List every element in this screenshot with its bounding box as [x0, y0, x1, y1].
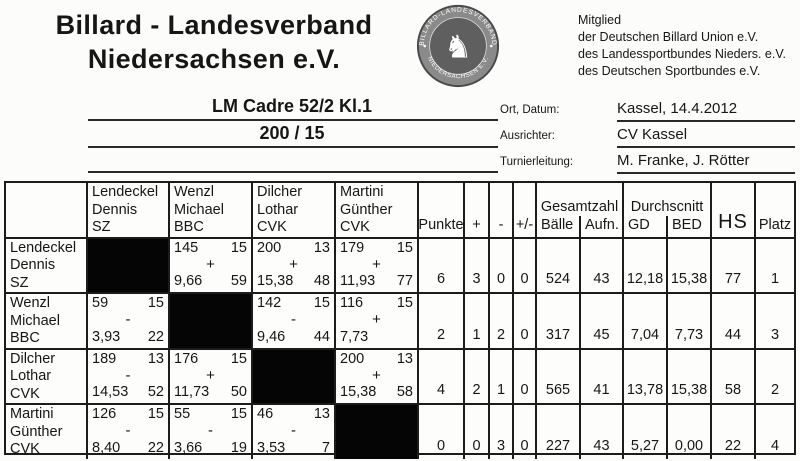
match-average: 7,73 [340, 329, 368, 345]
stat-plusminus: 0 [512, 294, 535, 348]
stat-baelle: 227 [535, 405, 579, 459]
match-sign: - [257, 311, 330, 328]
stat-bed: 15,38 [666, 239, 710, 293]
stat-baelle: 317 [535, 294, 579, 348]
match-cell: 5915 - 3,9322 [86, 294, 168, 348]
stat-plus: 0 [463, 405, 488, 459]
opponent-header-lendeckel: Lendeckel Dennis SZ [86, 183, 168, 237]
match-highrun: 7 [322, 440, 330, 456]
opponent-first-name: Lothar [257, 202, 332, 220]
header-aufn: Aufn. [579, 216, 622, 237]
stat-hs: 58 [710, 350, 754, 404]
organization-title-line1: Billard - Landesverband [28, 8, 400, 42]
stat-baelle: 565 [535, 350, 579, 404]
table-row-dilcher: Dilcher Lothar CVK 18913 - 14,5352 17615… [6, 348, 794, 404]
header-hs: HS [710, 183, 754, 237]
match-cell: 14515 + 9,6659 [168, 239, 251, 293]
match-sign: + [340, 367, 413, 384]
match-innings: 15 [148, 295, 164, 311]
match-innings: 15 [397, 295, 413, 311]
opponent-last-name: Martini [340, 184, 415, 202]
match-innings: 15 [314, 295, 330, 311]
match-cell: 18913 - 14,5352 [86, 350, 168, 404]
meta-ausrichter: Ausrichter: CV Kassel [500, 126, 796, 150]
match-innings: 15 [397, 240, 413, 256]
match-sign: - [92, 311, 164, 328]
opponent-last-name: Dilcher [257, 184, 332, 202]
match-innings: 13 [314, 406, 330, 422]
match-sign: - [174, 422, 247, 439]
stat-punkte: 6 [417, 239, 463, 293]
association-seal-logo: BILLARD-LANDESVERBAND NIEDERSACHSEN E.V.… [414, 2, 502, 90]
stat-gd: 13,78 [622, 350, 666, 404]
stat-aufn: 41 [579, 350, 622, 404]
match-average: 15,38 [257, 273, 293, 289]
player-cell: Lendeckel Dennis SZ [6, 239, 86, 293]
player-last-name: Lendeckel [10, 240, 84, 258]
stat-minus: 1 [488, 350, 512, 404]
header-durchschnitt: Durchscnitt [624, 199, 710, 216]
match-cell: 4613 - 3,537 [251, 405, 334, 459]
opponent-first-name: Günther [340, 202, 415, 220]
match-score: 59 [92, 295, 108, 311]
stat-minus: 2 [488, 294, 512, 348]
stat-aufn: 43 [579, 239, 622, 293]
stat-plusminus: 0 [512, 350, 535, 404]
match-sign: - [92, 422, 164, 439]
match-highrun: 22 [148, 329, 164, 345]
player-club: CVK [10, 386, 84, 404]
stat-hs: 22 [710, 405, 754, 459]
match-score: 142 [257, 295, 281, 311]
meta-label: Ort, Datum: [500, 104, 559, 116]
player-last-name: Martini [10, 406, 84, 424]
header-punkte: Punkte [417, 183, 463, 237]
opponent-last-name: Wenzl [174, 184, 249, 202]
match-highrun: 58 [397, 384, 413, 400]
stat-punkte: 2 [417, 294, 463, 348]
match-sign: + [340, 256, 413, 273]
match-average: 14,53 [92, 384, 128, 400]
event-title: LM Cadre 52/2 Kl.1 [85, 96, 499, 117]
header-plusminus: +/- [512, 183, 535, 237]
meta-label: Turnierleitung: [500, 156, 573, 168]
self-match-cell [168, 294, 251, 348]
match-highrun: 48 [314, 273, 330, 289]
match-cell: 17615 + 11,7350 [168, 350, 251, 404]
player-first-name: Günther [10, 424, 84, 442]
meta-label: Ausrichter: [500, 130, 555, 142]
match-score: 46 [257, 406, 273, 422]
match-sign: + [340, 311, 413, 328]
stat-baelle: 524 [535, 239, 579, 293]
player-cell: Martini Günther CVK [6, 405, 86, 459]
player-last-name: Wenzl [10, 295, 84, 313]
membership-line: des Landessportbundes Nieders. e.V. [578, 46, 786, 63]
match-score: 179 [340, 240, 364, 256]
stat-punkte: 0 [417, 405, 463, 459]
stat-punkte: 4 [417, 350, 463, 404]
opponent-club: CVK [257, 219, 332, 237]
header-baelle: Bälle [537, 216, 579, 237]
table-row-wenzl: Wenzl Michael BBC 5915 - 3,9322 14215 - … [6, 292, 794, 348]
opponent-first-name: Dennis [92, 202, 166, 220]
stat-plus: 1 [463, 294, 488, 348]
divider-line [88, 171, 498, 173]
stat-aufn: 43 [579, 405, 622, 459]
match-cell: 11615 + 7,73 [334, 294, 417, 348]
meta-value: Kassel, 14.4.2012 [617, 100, 795, 122]
match-cell: 17915 + 11,9377 [334, 239, 417, 293]
match-average: 15,38 [340, 384, 376, 400]
match-score: 189 [92, 351, 116, 367]
header-platz: Platz [754, 183, 794, 237]
meta-value: CV Kassel [617, 126, 795, 148]
membership-line: des Deutschen Sportbundes e.V. [578, 63, 786, 80]
corner-cell [6, 183, 86, 237]
match-cell: 20013 + 15,3858 [334, 350, 417, 404]
organization-title-line2: Niedersachsen e.V. [28, 42, 400, 76]
match-average: 9,66 [174, 273, 202, 289]
header-gesamtzahl: Gesamtzahl [537, 199, 622, 216]
meta-value: M. Franke, J. Rötter [617, 152, 795, 174]
table-row-lendeckel: Lendeckel Dennis SZ 14515 + 9,6659 20013… [6, 237, 794, 293]
header-durchschnitt-group: Durchscnitt GD BED [622, 183, 710, 237]
match-innings: 15 [231, 351, 247, 367]
match-average: 3,93 [92, 329, 120, 345]
divider-line [88, 119, 498, 121]
player-club: SZ [10, 275, 84, 293]
match-innings: 15 [231, 240, 247, 256]
match-innings: 15 [231, 406, 247, 422]
table-row-martini: Martini Günther CVK 12615 - 8,4022 5515 … [6, 403, 794, 459]
table-header-row: Lendeckel Dennis SZ Wenzl Michael BBC Di… [6, 183, 794, 237]
match-average: 3,53 [257, 440, 285, 456]
header-plus: + [463, 183, 488, 237]
opponent-club: CVK [340, 219, 415, 237]
match-score: 200 [340, 351, 364, 367]
player-club: BBC [10, 330, 84, 348]
stat-plusminus: 0 [512, 239, 535, 293]
stat-platz: 4 [754, 405, 794, 459]
match-score: 145 [174, 240, 198, 256]
match-average: 9,46 [257, 329, 285, 345]
stat-platz: 3 [754, 294, 794, 348]
meta-turnierleitung: Turnierleitung: M. Franke, J. Rötter [500, 152, 796, 176]
organization-title: Billard - Landesverband Niedersachsen e.… [28, 8, 400, 76]
membership-line: der Deutschen Billard Union e.V. [578, 29, 786, 46]
stat-aufn: 45 [579, 294, 622, 348]
horse-icon: ♞ [444, 30, 472, 65]
stat-bed: 15,38 [666, 350, 710, 404]
stat-bed: 7,73 [666, 294, 710, 348]
header-gd: GD [624, 216, 666, 237]
match-score: 116 [340, 295, 363, 311]
match-score: 55 [174, 406, 190, 422]
match-sign: - [92, 367, 164, 384]
scanned-result-sheet: Billard - Landesverband Niedersachsen e.… [0, 0, 800, 461]
match-average: 3,66 [174, 440, 202, 456]
match-highrun: 19 [231, 440, 247, 456]
header-gesamtzahl-group: Gesamtzahl Bälle Aufn. [535, 183, 622, 237]
stat-plus: 2 [463, 350, 488, 404]
match-innings: 13 [314, 240, 330, 256]
opponent-header-martini: Martini Günther CVK [334, 183, 417, 237]
stat-minus: 3 [488, 405, 512, 459]
player-cell: Dilcher Lothar CVK [6, 350, 86, 404]
header-bed: BED [666, 216, 710, 237]
player-first-name: Dennis [10, 257, 84, 275]
match-average: 11,93 [340, 273, 375, 289]
opponent-header-wenzl: Wenzl Michael BBC [168, 183, 251, 237]
match-highrun: 77 [397, 273, 413, 289]
membership-line: Mitglied [578, 12, 786, 29]
results-table: Lendeckel Dennis SZ Wenzl Michael BBC Di… [4, 181, 796, 455]
match-cell: 12615 - 8,4022 [86, 405, 168, 459]
match-cell: 14215 - 9,4644 [251, 294, 334, 348]
stat-platz: 1 [754, 239, 794, 293]
event-distance: 200 / 15 [85, 123, 499, 144]
match-highrun: 59 [231, 273, 247, 289]
stat-platz: 2 [754, 350, 794, 404]
membership-info: Mitglied der Deutschen Billard Union e.V… [578, 12, 786, 80]
stat-gd: 5,27 [622, 405, 666, 459]
match-score: 126 [92, 406, 116, 422]
divider-line [88, 146, 498, 148]
self-match-cell [86, 239, 168, 293]
opponent-header-dilcher: Dilcher Lothar CVK [251, 183, 334, 237]
stat-bed: 0,00 [666, 405, 710, 459]
match-innings: 13 [148, 351, 164, 367]
self-match-cell [251, 350, 334, 404]
match-sign: + [257, 256, 330, 273]
match-sign: + [174, 256, 247, 273]
opponent-last-name: Lendeckel [92, 184, 166, 202]
match-sign: + [174, 367, 247, 384]
match-average: 11,73 [174, 384, 209, 400]
self-match-cell [334, 405, 417, 459]
player-club: CVK [10, 441, 84, 459]
match-cell: 20013 + 15,3848 [251, 239, 334, 293]
match-highrun: 44 [314, 329, 330, 345]
player-first-name: Lothar [10, 368, 84, 386]
match-highrun: 50 [231, 384, 247, 400]
stat-gd: 7,04 [622, 294, 666, 348]
player-last-name: Dilcher [10, 351, 84, 369]
header-minus: - [488, 183, 512, 237]
player-cell: Wenzl Michael BBC [6, 294, 86, 348]
match-score: 176 [174, 351, 198, 367]
match-innings: 13 [397, 351, 413, 367]
meta-ort-datum: Ort, Datum: Kassel, 14.4.2012 [500, 100, 796, 124]
match-score: 200 [257, 240, 281, 256]
match-cell: 5515 - 3,6619 [168, 405, 251, 459]
player-first-name: Michael [10, 313, 84, 331]
stat-plusminus: 0 [512, 405, 535, 459]
match-highrun: 52 [148, 384, 164, 400]
stat-hs: 44 [710, 294, 754, 348]
opponent-club: BBC [174, 219, 249, 237]
match-average: 8,40 [92, 440, 120, 456]
stat-gd: 12,18 [622, 239, 666, 293]
opponent-club: SZ [92, 219, 166, 237]
match-highrun: 22 [148, 440, 164, 456]
match-sign: - [257, 422, 330, 439]
opponent-first-name: Michael [174, 202, 249, 220]
stat-minus: 0 [488, 239, 512, 293]
stat-plus: 3 [463, 239, 488, 293]
match-innings: 15 [148, 406, 164, 422]
stat-hs: 77 [710, 239, 754, 293]
